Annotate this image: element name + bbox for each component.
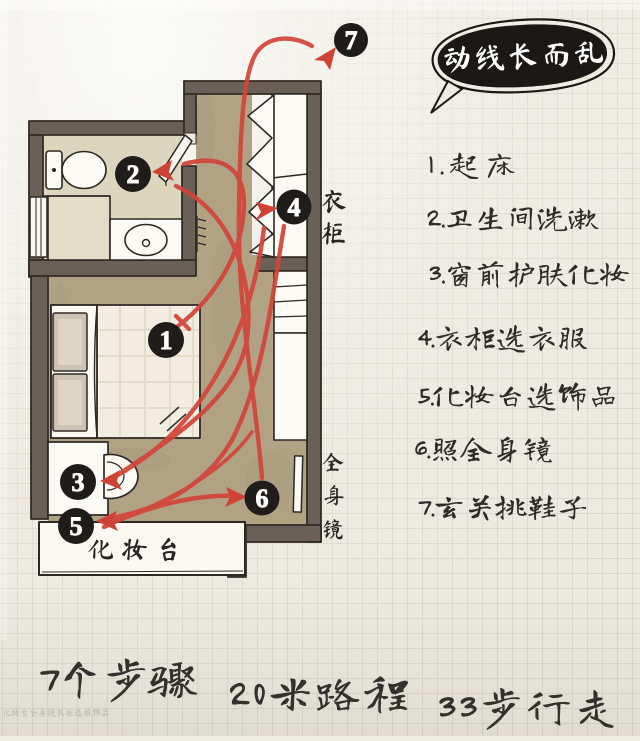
svg-text:7.玄关挑鞋子: 7.玄关挑鞋子 [417,490,589,521]
svg-text:4: 4 [288,193,301,222]
svg-text:7个步骤: 7个步骤 [38,654,197,703]
svg-text:化妆台全身镜衣柜选服饰品: 化妆台全身镜衣柜选服饰品 [2,708,110,718]
svg-text:5.化妆台选饰品: 5.化妆台选饰品 [417,379,619,411]
svg-text:1.起床: 1.起床 [428,148,523,179]
svg-text:3.窗前护肤化妆: 3.窗前护肤化妆 [428,257,630,289]
svg-text:2.卫生间洗漱: 2.卫生间洗漱 [426,201,599,232]
svg-text:柜: 柜 [320,220,347,247]
svg-text:身: 身 [323,484,345,506]
svg-text:6.照全身镜: 6.照全身镜 [414,432,553,463]
svg-text:1: 1 [160,326,173,355]
svg-text:33步行走: 33步行走 [437,684,622,730]
svg-text:6: 6 [256,484,269,513]
svg-text:7: 7 [345,26,358,55]
svg-text:镜: 镜 [322,518,344,540]
svg-text:20米路程: 20米路程 [228,670,412,714]
svg-text:化妆台: 化妆台 [87,536,189,563]
svg-text:4.衣柜选衣服: 4.衣柜选衣服 [417,321,589,353]
svg-text:全: 全 [322,451,344,473]
svg-text:5: 5 [70,512,83,541]
svg-text:2: 2 [127,160,140,189]
svg-text:衣: 衣 [321,188,348,215]
svg-text:3: 3 [72,468,85,497]
